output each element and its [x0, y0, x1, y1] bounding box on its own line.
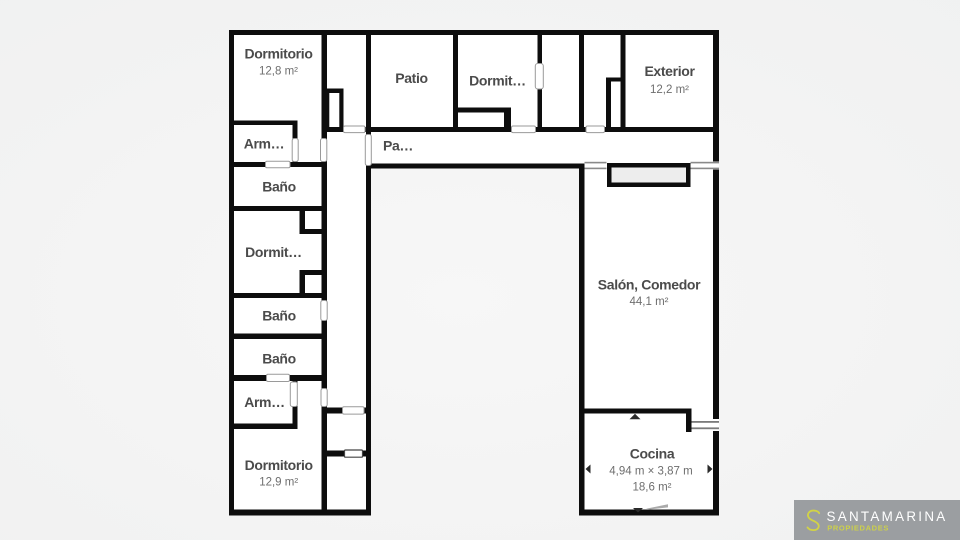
svg-text:Dormitorio: Dormitorio [244, 46, 312, 62]
svg-text:Baño: Baño [262, 179, 296, 195]
svg-text:Baño: Baño [262, 351, 296, 367]
svg-text:Cocina: Cocina [630, 445, 675, 461]
svg-text:Baño: Baño [262, 308, 296, 324]
svg-text:Patio: Patio [395, 70, 427, 86]
svg-text:Arm…: Arm… [244, 394, 285, 410]
svg-text:Arm…: Arm… [244, 136, 285, 152]
svg-text:Dormit…: Dormit… [245, 244, 302, 260]
svg-text:Salón, Comedor: Salón, Comedor [598, 277, 701, 293]
svg-text:PROPIEDADES: PROPIEDADES [827, 523, 889, 532]
svg-text:18,6 m²: 18,6 m² [633, 482, 672, 494]
svg-text:12,8 m²: 12,8 m² [259, 66, 298, 78]
svg-text:SANTAMARINA: SANTAMARINA [827, 509, 948, 524]
svg-text:Dormitorio: Dormitorio [245, 457, 313, 473]
svg-text:44,1 m²: 44,1 m² [630, 296, 669, 308]
svg-text:12,2 m²: 12,2 m² [650, 84, 689, 96]
svg-text:12,9 m²: 12,9 m² [259, 476, 298, 488]
svg-text:Dormit…: Dormit… [469, 73, 526, 89]
svg-text:Exterior: Exterior [644, 63, 695, 79]
svg-text:Pa…: Pa… [383, 138, 413, 154]
svg-text:4,94 m × 3,87 m: 4,94 m × 3,87 m [609, 466, 692, 478]
